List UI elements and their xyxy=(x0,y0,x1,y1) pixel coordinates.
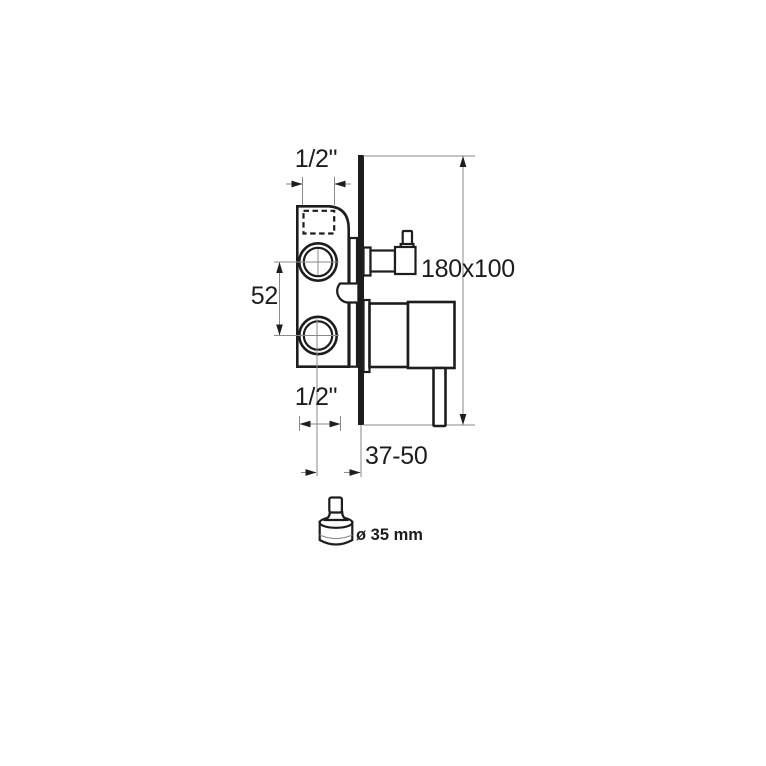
cartridge-icon xyxy=(320,498,353,545)
handle-body xyxy=(370,304,409,368)
body-boss-tab xyxy=(337,284,357,303)
dim-label-port-spacing: 52 xyxy=(220,284,278,309)
arrowhead-right-icon xyxy=(330,421,341,428)
dim-label-cartridge-diameter: ø 35 mm xyxy=(356,527,423,544)
arrowhead-down-icon xyxy=(276,325,283,336)
arrowhead-right-icon xyxy=(350,469,361,476)
handle-grip xyxy=(408,302,455,368)
dim-label-bottom-port: 1/2" xyxy=(295,385,337,410)
spout-pipe xyxy=(371,251,396,272)
spout-end-block xyxy=(395,247,416,274)
line-art-layer xyxy=(0,0,766,766)
handle-assembly xyxy=(364,300,455,426)
arrowhead-down-icon xyxy=(460,414,467,425)
arrowhead-left-icon xyxy=(335,181,346,188)
arrowhead-up-icon xyxy=(460,156,467,167)
arrowhead-up-icon xyxy=(276,262,283,273)
dim-label-depth-range: 37-50 xyxy=(365,444,427,469)
dim-label-rough-in-box: 180x100 xyxy=(421,257,515,282)
dim-label-top-port: 1/2" xyxy=(295,147,337,172)
arrowhead-right-icon xyxy=(292,181,303,188)
arrowhead-right-icon xyxy=(306,469,317,476)
spout-outlet xyxy=(364,231,416,276)
technical-drawing-canvas: 1/2" 52 1/2" 180x100 37-50 ø 35 mm xyxy=(0,0,766,766)
cartridge-stem xyxy=(329,498,342,513)
arrowhead-left-icon xyxy=(300,421,311,428)
handle-lever xyxy=(434,368,446,426)
